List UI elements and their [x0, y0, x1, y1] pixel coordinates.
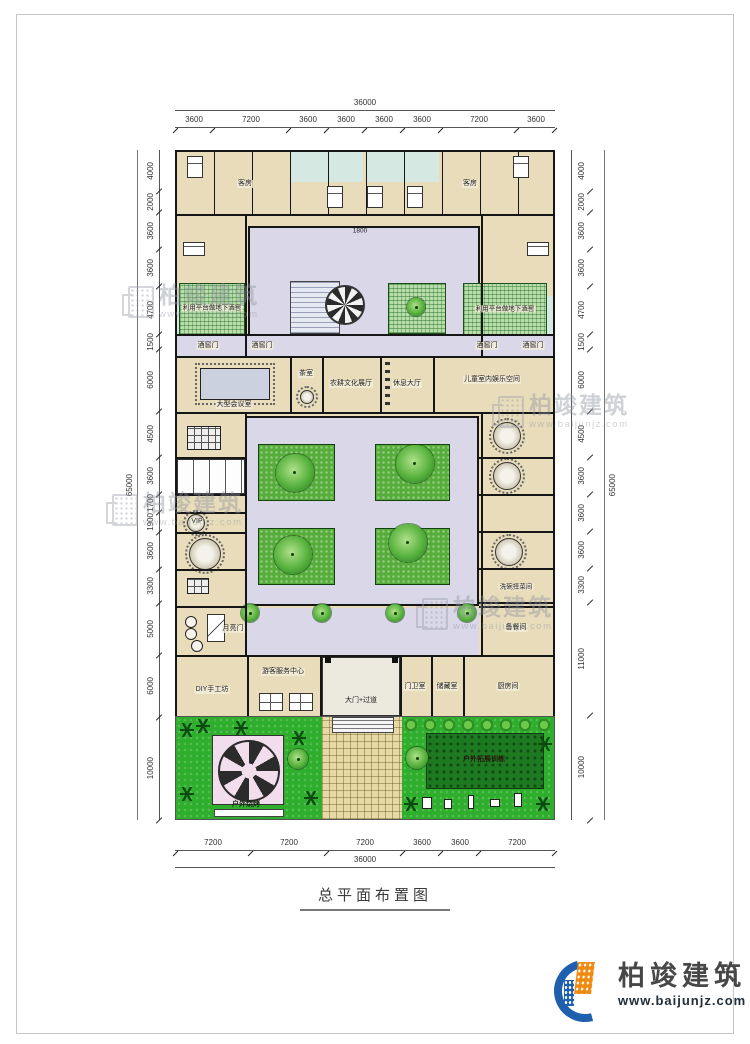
- bed-icon: [183, 242, 205, 256]
- dim-segment: 7200: [479, 836, 555, 850]
- room-label-bbq: 户外烧烤: [231, 801, 261, 809]
- room-label-conference: 大型会议室: [216, 401, 253, 409]
- tree-icon: [396, 445, 434, 483]
- decor-circle: [185, 616, 197, 628]
- room-label-cellar-door: 酒窖门: [476, 342, 499, 350]
- room-label-visitor-center: 游客服务中心: [261, 668, 305, 676]
- floor-plan: 客房 客房 1800 利用平台做地下酒窖 利用平台做地下酒窖 酒窖门 酒窖门 酒…: [175, 150, 555, 820]
- company-logo: 柏竣建筑 www.baijunjz.com: [552, 956, 746, 1014]
- dim-segment: 7200: [251, 836, 327, 850]
- bed-icon: [527, 242, 549, 256]
- service-desk: [289, 693, 313, 711]
- room-label-outdoor-training: 户外拓展训练: [462, 756, 506, 764]
- room-label-vip: VIP: [190, 518, 203, 526]
- shrub-icon: [536, 797, 550, 811]
- decor-circle: [185, 628, 197, 640]
- room-label-tea: 茶室: [298, 370, 314, 378]
- tree-icon: [313, 604, 331, 622]
- dim-segment: 3600: [403, 836, 441, 850]
- round-dining-table: [189, 538, 221, 570]
- room-label-platform-cellar-left: 利用平台做地下酒窖: [182, 304, 243, 311]
- dim-segment: 3600: [175, 113, 213, 127]
- tree-icon: [389, 524, 427, 562]
- dim-top-total: 36000: [175, 96, 555, 111]
- room-label-kids: 儿童室内娱乐空间: [463, 376, 521, 384]
- dim-segment: 3600: [289, 113, 327, 127]
- main-gate-passage: [322, 657, 400, 716]
- room-label-cellar-door: 酒窖门: [197, 342, 220, 350]
- room-label-rest-hall: 休息大厅: [392, 380, 422, 388]
- dim-segment: 3600: [517, 113, 555, 127]
- tea-table: [300, 390, 314, 404]
- dim-bottom-total: 36000: [175, 853, 555, 868]
- shrub-icon: [196, 719, 210, 733]
- round-dining-table: [493, 422, 521, 450]
- dim-bottom-segments: 7200 7200 7200 3600 3600 7200: [175, 836, 555, 851]
- company-url: www.baijunjz.com: [618, 993, 746, 1008]
- shrub-icon: [538, 737, 552, 751]
- site-plan-sheet: 36000 3600 7200 3600 3600 3600 3600 7200…: [0, 0, 750, 1044]
- corridor-south: [247, 608, 479, 655]
- tree-icon: [276, 454, 314, 492]
- tree-icon: [386, 604, 404, 622]
- shrub-icon: [234, 721, 248, 735]
- bed-icon: [407, 186, 423, 208]
- dim-segment: 3600: [327, 113, 365, 127]
- round-dining-table: [495, 538, 523, 566]
- outdoor-area: 户外烧烤 户外拓展训练: [175, 716, 555, 820]
- compass-ornament: [325, 285, 365, 325]
- gate-post: [392, 657, 398, 663]
- tree-icon: [458, 604, 476, 622]
- bed-icon: [327, 186, 343, 208]
- room-label-guard: 门卫室: [404, 683, 427, 691]
- tree-icon: [274, 536, 312, 574]
- room-label-guest-left: 客房: [237, 180, 253, 188]
- tree-icon: [407, 298, 425, 316]
- shrub-icon: [404, 797, 418, 811]
- bed-icon: [367, 186, 383, 208]
- decor-circle: [191, 640, 203, 652]
- tree-row: [404, 718, 552, 732]
- room-label-moon-gate: 月亮门: [222, 625, 245, 633]
- dim-left-segments: 4000 2000 3600 3600 4700 1500 6000 4500 …: [141, 150, 160, 820]
- bbq-circle-pattern: [218, 740, 280, 802]
- bench: [214, 809, 284, 817]
- dim-top-segments: 3600 7200 3600 3600 3600 3600 7200 3600: [175, 113, 555, 128]
- room-label-cellar-door: 酒窖门: [251, 342, 274, 350]
- dim-segment: 3600: [441, 836, 479, 850]
- work-table: [187, 426, 221, 450]
- work-table: [187, 578, 209, 594]
- drawing-title: 总平面布置图: [300, 884, 450, 911]
- dim-segment: 3600: [403, 113, 441, 127]
- tree-icon: [288, 749, 308, 769]
- fitness-equipment: [444, 799, 452, 809]
- conference-table: [200, 368, 270, 400]
- fitness-equipment: [514, 793, 522, 807]
- service-desk: [259, 693, 283, 711]
- room-label-kitchen: 厨房间: [497, 683, 520, 691]
- round-dining-table: [493, 462, 521, 490]
- company-logo-icon: [552, 956, 610, 1014]
- room-label-meal-prep: 备餐间: [505, 624, 528, 632]
- tree-icon: [406, 747, 428, 769]
- entrance-steps: [332, 717, 394, 733]
- shrub-icon: [292, 731, 306, 745]
- room-label-guest-right: 客房: [462, 180, 478, 188]
- room-label-gate: 大门+过道: [344, 697, 378, 705]
- toilet-stalls: [177, 459, 245, 494]
- gate-post: [325, 657, 331, 663]
- fitness-equipment: [422, 797, 432, 809]
- dim-segment: 7200: [441, 113, 517, 127]
- fitness-equipment: [468, 795, 474, 809]
- company-name: 柏竣建筑: [618, 963, 746, 990]
- room-label-cellar-door: 酒窖门: [522, 342, 545, 350]
- dim-right-segments: 4000 2000 3600 3600 4700 1500 6000 4500 …: [571, 150, 590, 820]
- dim-right-total: 65000: [604, 150, 620, 820]
- room-label-storage: 储藏室: [436, 683, 459, 691]
- dim-segment: 7200: [327, 836, 403, 850]
- room-label-dishwash: 洗碗择菜间: [499, 583, 534, 590]
- room-label-diy: DIY手工坊: [195, 686, 230, 694]
- dim-segment: 7200: [213, 113, 289, 127]
- bed-icon: [513, 156, 529, 178]
- room-label-platform-cellar-right: 利用平台做地下酒窖: [475, 305, 536, 312]
- shrub-icon: [180, 787, 194, 801]
- bed-icon: [187, 156, 203, 178]
- shrub-icon: [180, 723, 194, 737]
- dim-segment: 3600: [365, 113, 403, 127]
- entry-width-dim: 1800: [352, 227, 368, 234]
- dim-segment: 7200: [175, 836, 251, 850]
- shrub-icon: [304, 791, 318, 805]
- room-label-farming-hall: 农耕文化展厅: [329, 380, 373, 388]
- dim-left-total: 65000: [122, 150, 138, 820]
- fitness-equipment: [490, 799, 500, 807]
- chair-row: [385, 362, 390, 408]
- guest-room-partitions: [177, 152, 553, 214]
